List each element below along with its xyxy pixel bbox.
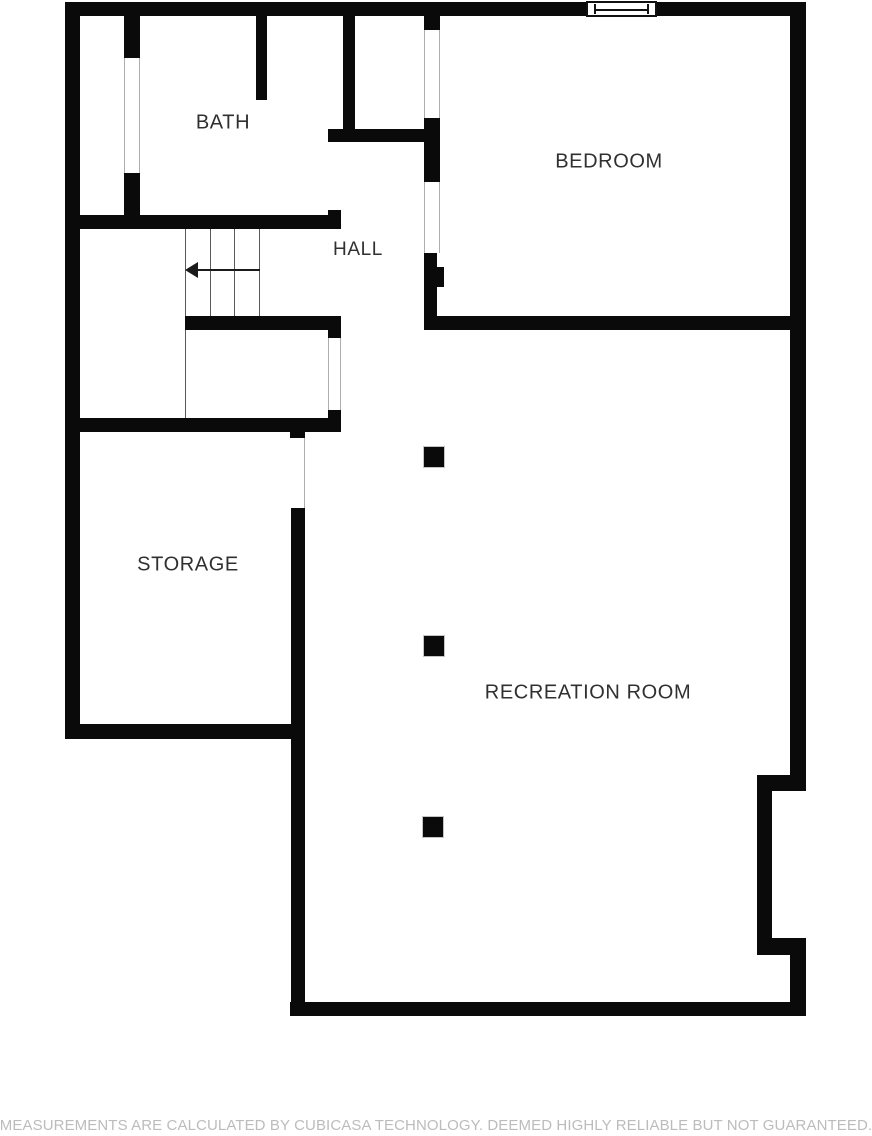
window-icon — [586, 1, 657, 17]
wall-stairs-cap-upper — [328, 316, 341, 338]
wall-bath-right — [343, 14, 355, 133]
line-recreation-boundary — [304, 438, 305, 508]
stairs-down-arrow-icon — [185, 262, 198, 278]
wall-recreation-left — [291, 508, 305, 1016]
window-bath-left — [124, 58, 140, 173]
structural-column-3 — [423, 817, 443, 837]
label-storage: STORAGE — [137, 554, 239, 577]
wall-door-jamb-bump — [437, 267, 444, 287]
label-hall: HALL — [333, 239, 383, 261]
opening-hall-closet — [328, 338, 341, 410]
line-understairs-boundary — [185, 330, 186, 418]
label-bath: BATH — [196, 112, 250, 135]
wall-bedroom-stub-top — [424, 14, 440, 30]
stair-edge-line — [259, 229, 260, 316]
opening-bedroom-door — [424, 182, 440, 253]
wall-storage-bottom — [65, 724, 305, 739]
disclaimer-text: MEASUREMENTS ARE CALCULATED BY CUBICASA … — [0, 1117, 872, 1134]
structural-column-1 — [424, 447, 444, 467]
wall-bath-left-lower — [124, 173, 140, 216]
stairs-direction-line — [196, 269, 260, 271]
wall-recreation-bottom — [290, 1002, 806, 1016]
wall-bath-bottom — [65, 215, 341, 229]
floor-plan-canvas: BATH HALL BEDROOM STORAGE RECREATION ROO… — [0, 0, 872, 1136]
wall-exterior-right-upper — [790, 2, 806, 791]
wall-bath-bottom-cap — [328, 210, 341, 229]
wall-bath-partition — [256, 14, 267, 100]
wall-exterior-left — [65, 2, 80, 739]
wall-stairs-bottom — [185, 316, 341, 330]
structural-column-2 — [424, 636, 444, 656]
wall-recreation-left-stub — [290, 432, 305, 438]
label-recreation: RECREATION ROOM — [485, 682, 691, 705]
wall-bedroom-bottom — [424, 316, 806, 330]
stair-tread-line — [210, 229, 211, 316]
wall-bath-left-upper — [124, 14, 140, 58]
wall-closet-bottom — [328, 129, 438, 142]
window-mullion-right — [647, 4, 649, 14]
window-glass-line — [596, 9, 647, 11]
opening-bedroom-upper — [424, 30, 440, 118]
wall-notch-left — [757, 775, 772, 955]
wall-storage-top — [65, 418, 341, 432]
wall-bedroom-mid — [424, 118, 440, 182]
label-bedroom: BEDROOM — [555, 151, 663, 174]
stair-tread-line — [234, 229, 235, 316]
